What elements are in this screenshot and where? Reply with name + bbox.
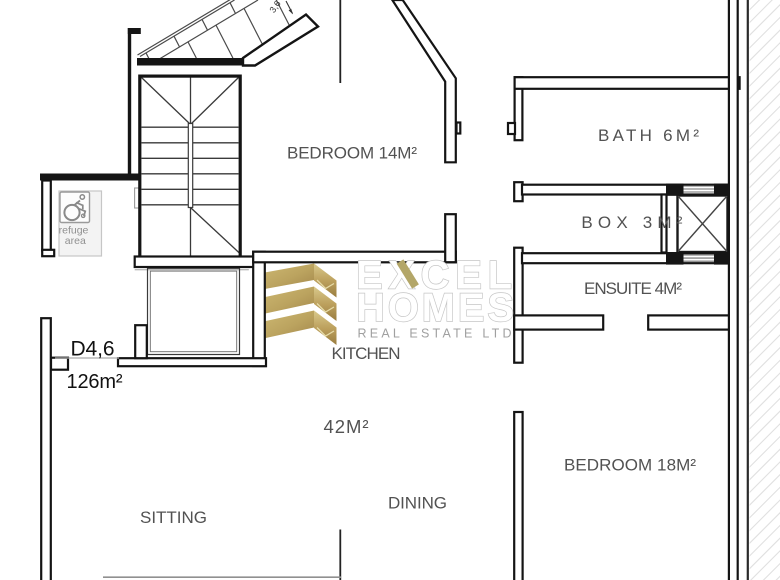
svg-text:ENSUITE 4M²: ENSUITE 4M² bbox=[584, 279, 682, 298]
svg-text:HOMES: HOMES bbox=[356, 286, 514, 330]
svg-text:area: area bbox=[65, 235, 86, 247]
svg-text:BEDROOM 18M²: BEDROOM 18M² bbox=[564, 456, 696, 475]
svg-text:42M²: 42M² bbox=[324, 416, 369, 437]
svg-text:BEDROOM 14M²: BEDROOM 14M² bbox=[287, 144, 417, 163]
svg-text:BATH 6M²: BATH 6M² bbox=[598, 126, 699, 145]
svg-text:KITCHEN: KITCHEN bbox=[332, 344, 401, 363]
svg-text:126m²: 126m² bbox=[67, 371, 123, 393]
svg-text:D4,6: D4,6 bbox=[71, 338, 115, 361]
svg-text:DINING: DINING bbox=[388, 494, 447, 513]
svg-text:SITTING: SITTING bbox=[140, 508, 207, 527]
